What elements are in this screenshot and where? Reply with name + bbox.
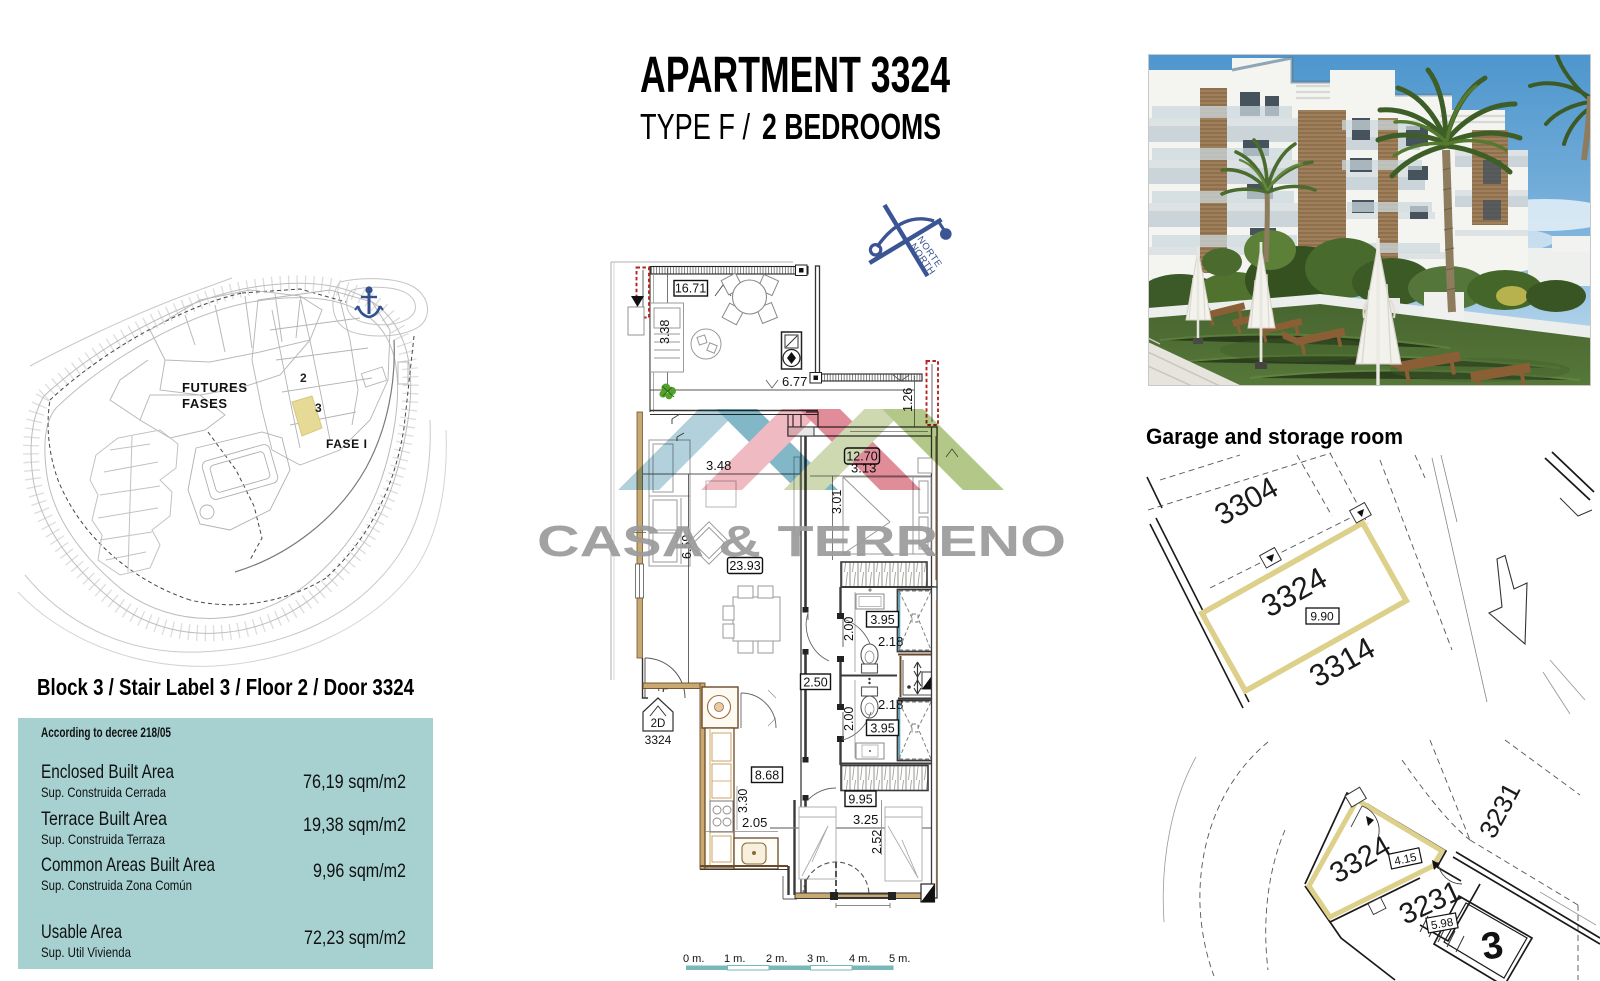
svg-text:3.95: 3.95	[870, 613, 894, 627]
svg-text:3: 3	[315, 401, 322, 415]
svg-text:9.90: 9.90	[1310, 610, 1334, 624]
svg-text:APARTMENT 3324: APARTMENT 3324	[640, 46, 950, 103]
svg-text:3.25: 3.25	[853, 812, 878, 827]
svg-text:8.68: 8.68	[755, 769, 779, 783]
svg-text:Garage and storage room: Garage and storage room	[1146, 424, 1403, 449]
svg-text:FASE I: FASE I	[326, 437, 368, 451]
svg-text:According to decree 218/05: According to decree 218/05	[41, 725, 171, 740]
svg-text:3.38: 3.38	[658, 320, 672, 344]
svg-text:6.77: 6.77	[782, 374, 807, 389]
svg-text:Sup. Construida Terraza: Sup. Construida Terraza	[41, 831, 165, 847]
svg-text:1 m.: 1 m.	[724, 953, 745, 965]
svg-text:2.18: 2.18	[878, 634, 903, 649]
svg-text:9,96 sqm/m2: 9,96 sqm/m2	[313, 860, 406, 882]
svg-text:FASES: FASES	[182, 396, 228, 411]
svg-text:2 m.: 2 m.	[766, 953, 787, 965]
svg-text:2.52: 2.52	[870, 830, 884, 854]
svg-text:3.30: 3.30	[736, 789, 750, 813]
svg-text:Terrace Built Area: Terrace Built Area	[41, 808, 167, 830]
svg-text:CASA & TERRENO: CASA & TERRENO	[537, 517, 1066, 566]
svg-text:Sup. Construida Zona Común: Sup. Construida Zona Común	[41, 877, 192, 893]
svg-text:Common Areas Built Area: Common Areas Built Area	[41, 854, 215, 876]
svg-text:2D: 2D	[651, 718, 666, 730]
svg-text:Usable Area: Usable Area	[41, 921, 122, 943]
svg-text:Enclosed Built Area: Enclosed Built Area	[41, 761, 174, 783]
svg-text:Sup. Util Vivienda: Sup. Util Vivienda	[41, 944, 131, 960]
svg-text:9.95: 9.95	[848, 793, 872, 807]
svg-text:2: 2	[300, 371, 307, 385]
svg-text:0 m.: 0 m.	[683, 953, 704, 965]
svg-text:5 m.: 5 m.	[889, 953, 910, 965]
svg-text:Block 3 / Stair Label 3 / Floo: Block 3 / Stair Label 3 / Floor 2 / Door…	[37, 674, 414, 700]
svg-text:Sup. Construida Cerrada: Sup. Construida Cerrada	[41, 784, 166, 800]
svg-text:76,19 sqm/m2: 76,19 sqm/m2	[303, 771, 406, 793]
svg-text:2.18: 2.18	[878, 697, 903, 712]
svg-text:3 m.: 3 m.	[807, 953, 828, 965]
svg-text:1.26: 1.26	[901, 388, 915, 412]
svg-text:72,23 sqm/m2: 72,23 sqm/m2	[304, 927, 406, 949]
svg-text:19,38 sqm/m2: 19,38 sqm/m2	[303, 814, 406, 836]
svg-text:3324: 3324	[645, 733, 672, 747]
svg-text:3.01: 3.01	[830, 490, 844, 514]
svg-text:TYPE F /2 BEDROOMS: TYPE F /2 BEDROOMS	[640, 106, 941, 147]
svg-text:2.50: 2.50	[803, 676, 827, 690]
svg-text:4 m.: 4 m.	[849, 953, 870, 965]
svg-text:3.95: 3.95	[870, 722, 894, 736]
svg-text:2.05: 2.05	[742, 815, 767, 830]
svg-text:2.00: 2.00	[842, 707, 856, 731]
svg-text:2.00: 2.00	[842, 617, 856, 641]
svg-text:16.71: 16.71	[675, 282, 706, 296]
svg-text:FUTURES: FUTURES	[182, 380, 248, 395]
